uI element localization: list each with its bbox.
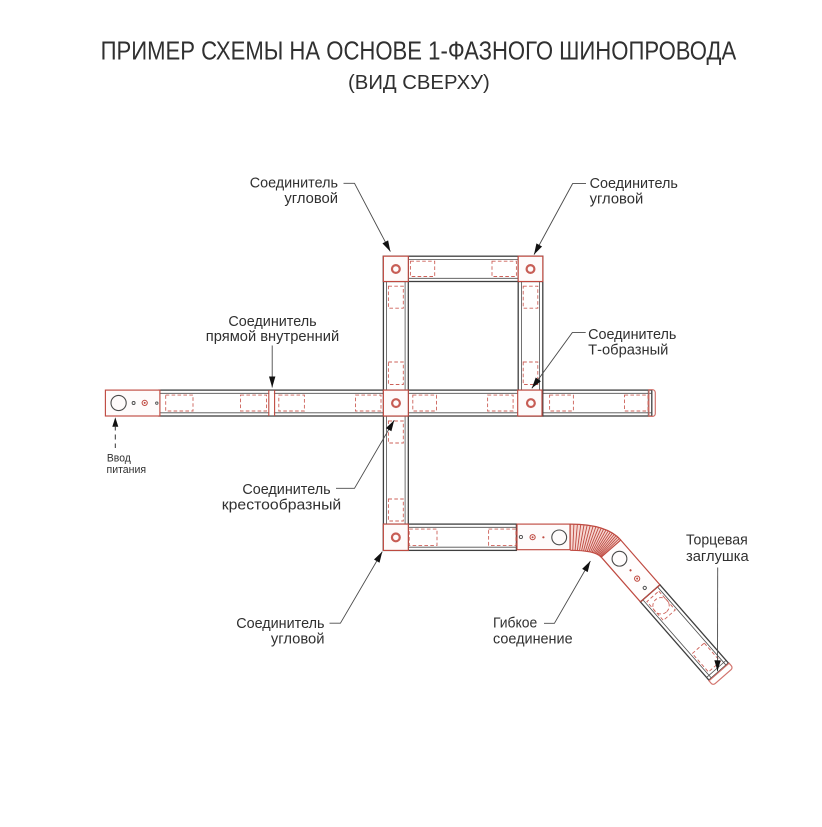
svg-text:Соединитель: Соединитель bbox=[250, 175, 338, 192]
svg-text:угловой: угловой bbox=[590, 191, 644, 208]
svg-text:Соединитель: Соединитель bbox=[590, 175, 678, 192]
svg-text:Т-образный: Т-образный bbox=[588, 341, 668, 358]
svg-text:Торцевая: Торцевая bbox=[686, 532, 748, 549]
svg-text:питания: питания bbox=[107, 464, 147, 476]
svg-text:заглушка: заглушка bbox=[686, 548, 749, 565]
svg-text:угловой: угловой bbox=[284, 190, 338, 207]
svg-text:крестообразный: крестообразный bbox=[222, 497, 342, 514]
svg-text:соединение: соединение bbox=[493, 630, 573, 647]
svg-text:ПРИМЕР СХЕМЫ НА ОСНОВЕ 1-ФАЗНО: ПРИМЕР СХЕМЫ НА ОСНОВЕ 1-ФАЗНОГО ШИНОПРО… bbox=[101, 35, 737, 65]
svg-text:Соединитель: Соединитель bbox=[242, 481, 330, 498]
svg-text:прямой внутренний: прямой внутренний bbox=[206, 328, 339, 345]
svg-text:Ввод: Ввод bbox=[107, 453, 132, 465]
svg-text:(ВИД СВЕРХУ): (ВИД СВЕРХУ) bbox=[348, 72, 490, 94]
svg-text:угловой: угловой bbox=[271, 631, 325, 648]
svg-text:Гибкое: Гибкое bbox=[493, 615, 537, 632]
